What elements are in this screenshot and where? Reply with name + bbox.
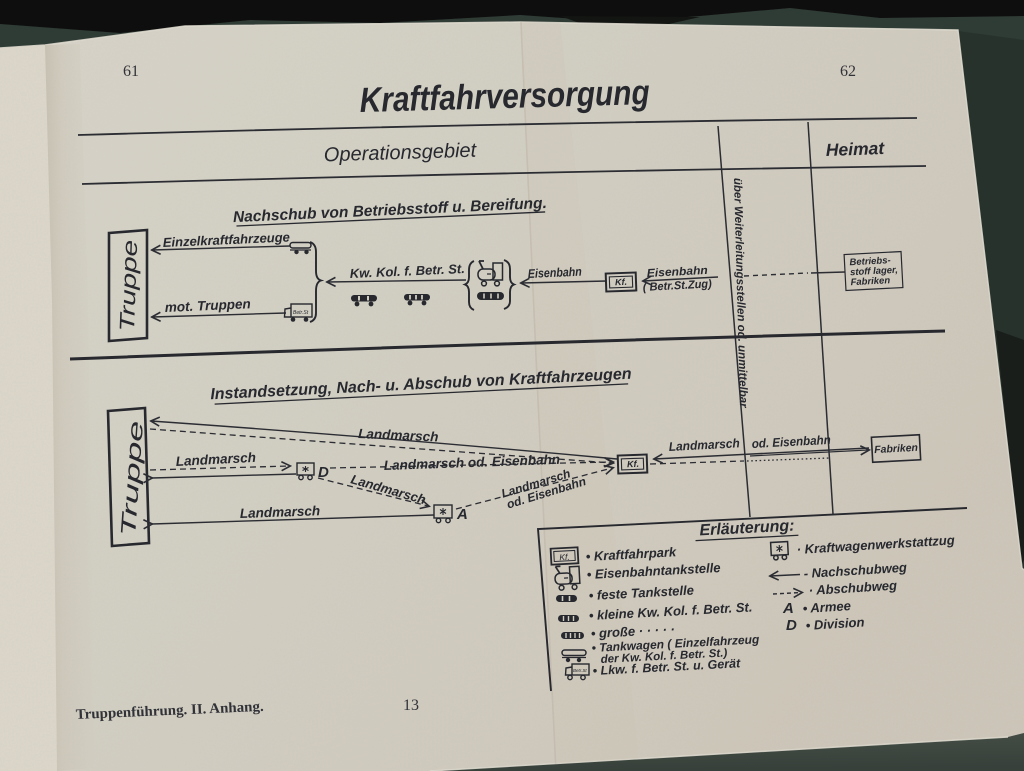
svg-text:Kraftfahrversorgung: Kraftfahrversorgung: [359, 73, 650, 120]
svg-text:A: A: [782, 600, 794, 617]
svg-text:61: 61: [123, 63, 139, 80]
svg-text:Heimat: Heimat: [825, 138, 885, 160]
svg-text:Kf.: Kf.: [559, 552, 570, 563]
svg-text:13: 13: [403, 697, 419, 714]
svg-text:Kf.: Kf.: [627, 459, 639, 469]
svg-text:Kf.: Kf.: [615, 277, 627, 287]
svg-text:62: 62: [840, 63, 856, 80]
svg-text:Betr.St: Betr.St: [293, 310, 309, 316]
svg-text:Truppe: Truppe: [116, 239, 142, 332]
svg-text:Betr.St: Betr.St: [573, 668, 587, 673]
svg-text:Landmarsch: Landmarsch: [240, 503, 321, 521]
svg-text:Eisenbahn: Eisenbahn: [528, 265, 583, 281]
svg-text:D: D: [786, 617, 797, 634]
svg-text:Fabriken: Fabriken: [874, 442, 918, 456]
svg-text:Fabriken: Fabriken: [850, 275, 890, 288]
svg-text:• Armee: • Armee: [802, 598, 851, 616]
